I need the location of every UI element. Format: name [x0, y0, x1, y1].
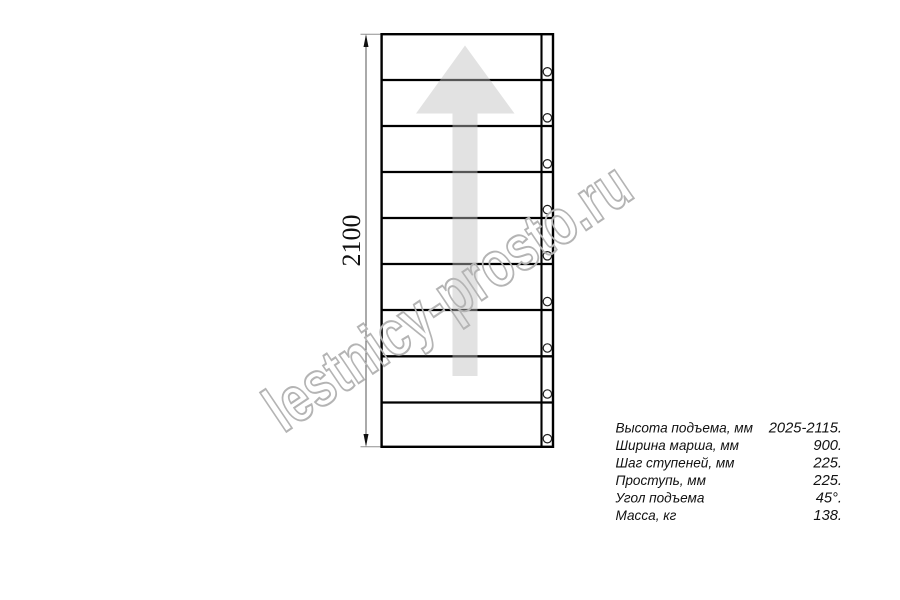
- svg-text:Угол подъема: Угол подъема: [615, 491, 705, 506]
- svg-text:45°.: 45°.: [816, 491, 842, 507]
- svg-text:2100: 2100: [337, 215, 366, 267]
- svg-text:225.: 225.: [812, 473, 842, 489]
- svg-text:900.: 900.: [813, 438, 842, 454]
- svg-text:225.: 225.: [812, 456, 842, 472]
- svg-text:Высота подъема, мм: Высота подъема, мм: [616, 421, 754, 436]
- svg-text:138.: 138.: [813, 508, 842, 524]
- svg-text:Масса, кг: Масса, кг: [616, 508, 677, 523]
- svg-text:2025-2115.: 2025-2115.: [768, 421, 842, 437]
- svg-text:Шаг ступеней, мм: Шаг ступеней, мм: [616, 456, 736, 471]
- svg-text:Проступь, мм: Проступь, мм: [616, 473, 707, 488]
- svg-text:Ширина марша, мм: Ширина марша, мм: [616, 438, 740, 453]
